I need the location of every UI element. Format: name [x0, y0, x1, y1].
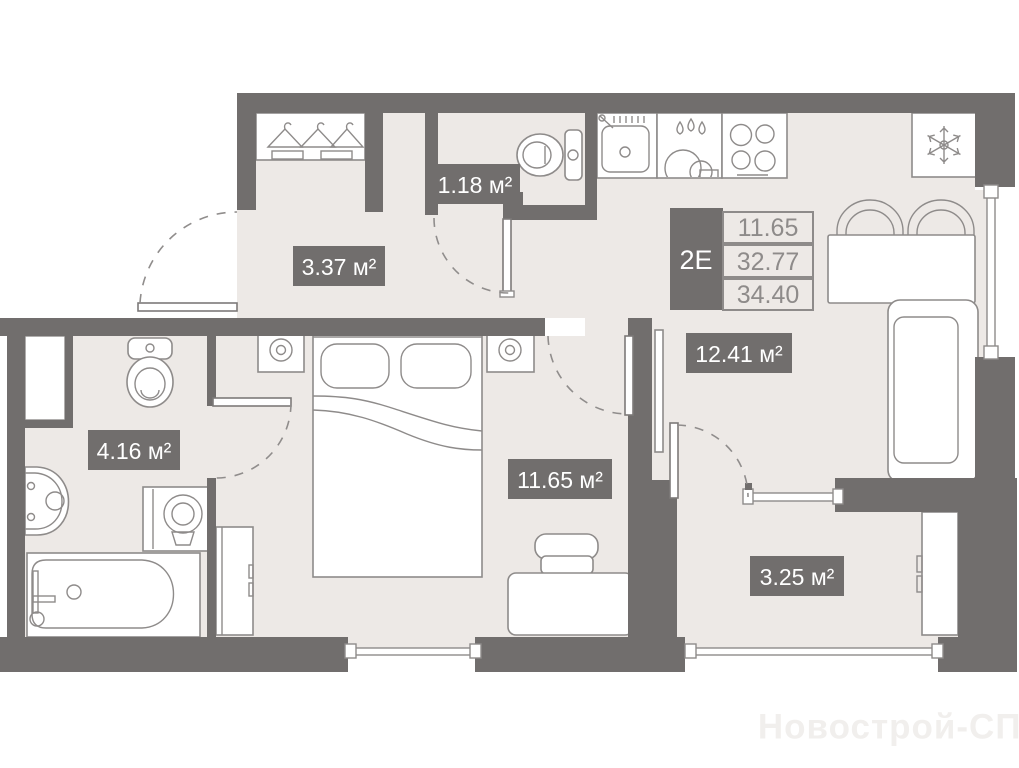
room-label-living-text: 12.41 м² — [695, 341, 783, 367]
room-label-living: 12.41 м² — [686, 333, 792, 373]
floorplan-page: 1.18 м² 3.37 м² 4.16 м² 11.65 м² 12.41 м… — [0, 0, 1019, 768]
floorplan-svg: 1.18 м² 3.37 м² 4.16 м² 11.65 м² 12.41 м… — [0, 0, 1019, 768]
area-living-value: 32.77 — [737, 248, 800, 276]
bathtub-icon — [27, 553, 200, 637]
room-label-loggia: 3.25 м² — [750, 556, 844, 596]
toilet-icon — [127, 338, 173, 407]
stove-icon — [722, 113, 787, 178]
room-label-loggia-text: 3.25 м² — [760, 564, 835, 590]
kitchen-sink-icon — [597, 113, 657, 178]
room-label-bathroom-text: 4.16 м² — [97, 438, 172, 464]
bedroom-cabinet — [216, 527, 253, 635]
loggia-cabinet — [917, 512, 958, 635]
room-label-wc: 1.18 м² — [430, 164, 520, 204]
room-label-hallway: 3.37 м² — [293, 246, 385, 286]
room-label-bedroom: 11.65 м² — [508, 459, 612, 499]
toilet-icon — [517, 130, 582, 180]
room-label-bedroom-text: 11.65 м² — [517, 467, 603, 493]
fridge-icon — [912, 113, 977, 177]
room-label-bathroom: 4.16 м² — [88, 430, 180, 470]
area-total-value: 34.40 — [737, 281, 800, 309]
watermark: Новострой-СПб — [758, 708, 1019, 747]
sofa — [888, 300, 978, 482]
tv — [655, 330, 663, 452]
wardrobe-hangers — [256, 113, 365, 160]
desk — [508, 573, 633, 635]
room-label-hallway-text: 3.37 м² — [302, 254, 377, 280]
apartment-type-text: 2Е — [679, 245, 712, 275]
room-label-wc-text: 1.18 м² — [438, 172, 513, 198]
dishwasher-icon — [657, 113, 722, 186]
shaft-niche — [25, 336, 65, 420]
apartment-info-box: 2Е 11.65 32.77 34.40 — [670, 208, 813, 310]
bed — [313, 328, 482, 577]
washer-icon — [143, 487, 209, 551]
area-room-value: 11.65 — [738, 214, 799, 242]
